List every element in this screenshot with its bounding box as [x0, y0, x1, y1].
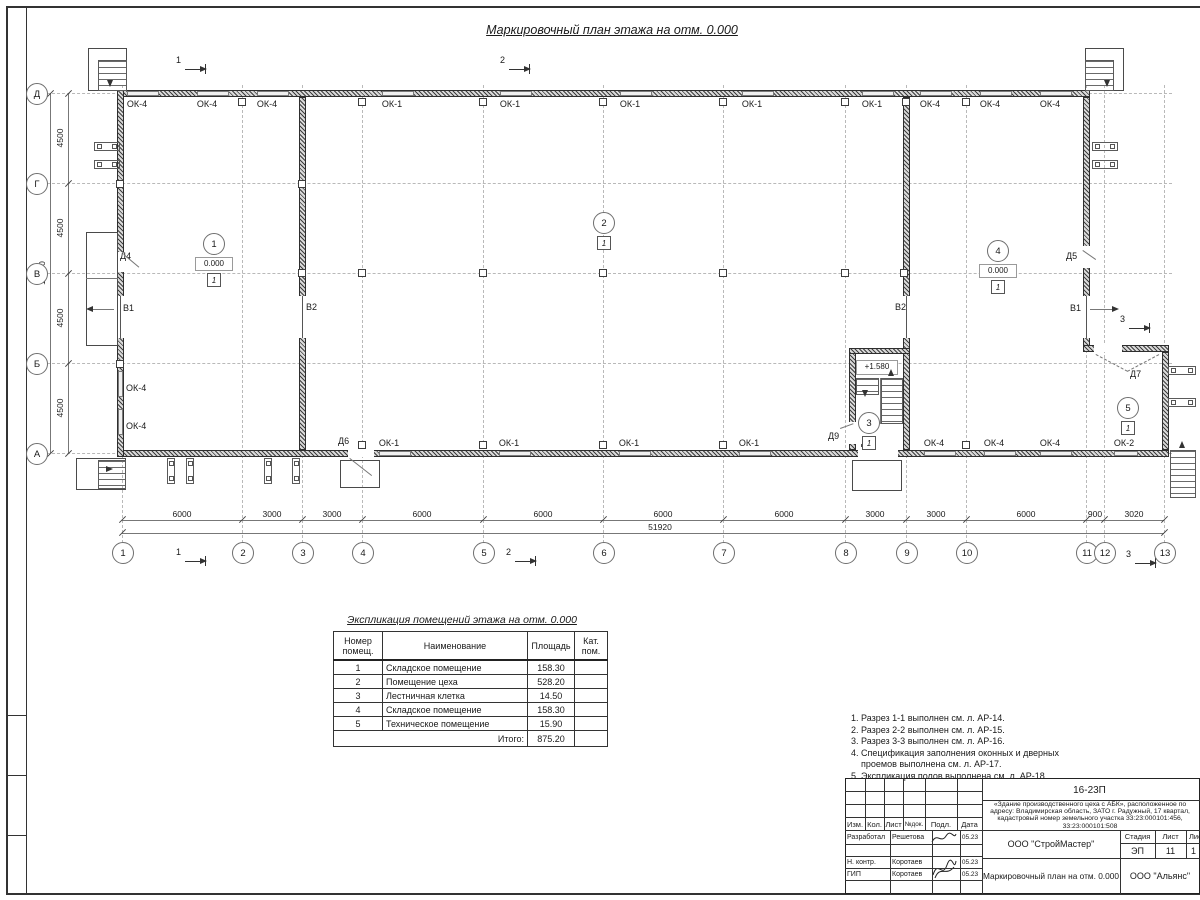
- company: ООО "Альянс": [1120, 858, 1200, 894]
- title-block-line: [845, 868, 982, 869]
- document-code: 16-23П: [982, 780, 1197, 800]
- title-block-line: [845, 880, 982, 881]
- sheet-value: 11: [1155, 843, 1186, 858]
- title-block-line: [1120, 843, 1200, 844]
- title-block: 16-23П «Здание производственного цеха с …: [0, 0, 1200, 900]
- sheets-header: Листов: [1189, 830, 1200, 843]
- column-izm: Изм.: [845, 818, 865, 830]
- title-block-line: [845, 791, 982, 792]
- stage-value: ЭП: [1120, 843, 1155, 858]
- sheets-value: 1: [1191, 843, 1200, 858]
- title-block-line: [982, 800, 1200, 801]
- signature-date: 05.23: [958, 831, 982, 843]
- signer-role: ГИП: [847, 868, 889, 880]
- title-block-line: [982, 858, 1200, 859]
- signature: [930, 831, 958, 845]
- title-block-line: [1186, 830, 1187, 858]
- organization: ООО "СтройМастер": [982, 830, 1120, 858]
- signer-role: Разработал: [847, 831, 889, 843]
- object-description: «Здание производственного цеха с АБК», р…: [986, 801, 1194, 829]
- title-block-line: [845, 856, 982, 857]
- column-kol: Кол.: [865, 818, 884, 830]
- drawing-sheet: { "page_title": "Маркировочный план этаж…: [0, 0, 1200, 900]
- sheet-title: Маркировочный план на отм. 0.000: [982, 858, 1120, 894]
- title-block-line: [890, 830, 891, 894]
- column-list: Лист: [884, 818, 903, 830]
- column-podl: Подл.: [925, 818, 957, 830]
- title-block-line: [1120, 830, 1121, 894]
- signature-date: 05.23: [958, 856, 982, 868]
- title-block-line: [845, 804, 982, 805]
- signer-name: Коротаев: [892, 856, 930, 868]
- title-block-line: [982, 778, 983, 894]
- stage-header: Стадия: [1120, 830, 1155, 843]
- title-block-line: [845, 830, 1200, 831]
- column-data: Дата: [957, 818, 982, 830]
- signature-date: 05.23: [958, 868, 982, 880]
- signer-name: Решетова: [892, 831, 930, 843]
- title-block-line: [845, 817, 982, 818]
- title-block-line: [845, 844, 982, 845]
- signer-role: Н. контр.: [847, 856, 889, 868]
- title-block-line: [960, 830, 961, 894]
- title-block-line: [1155, 830, 1156, 858]
- column-ndoc: №док.: [903, 818, 925, 830]
- signer-name: Коротаев: [892, 868, 930, 880]
- sheet-header: Лист: [1155, 830, 1186, 843]
- title-block-line: [932, 830, 933, 894]
